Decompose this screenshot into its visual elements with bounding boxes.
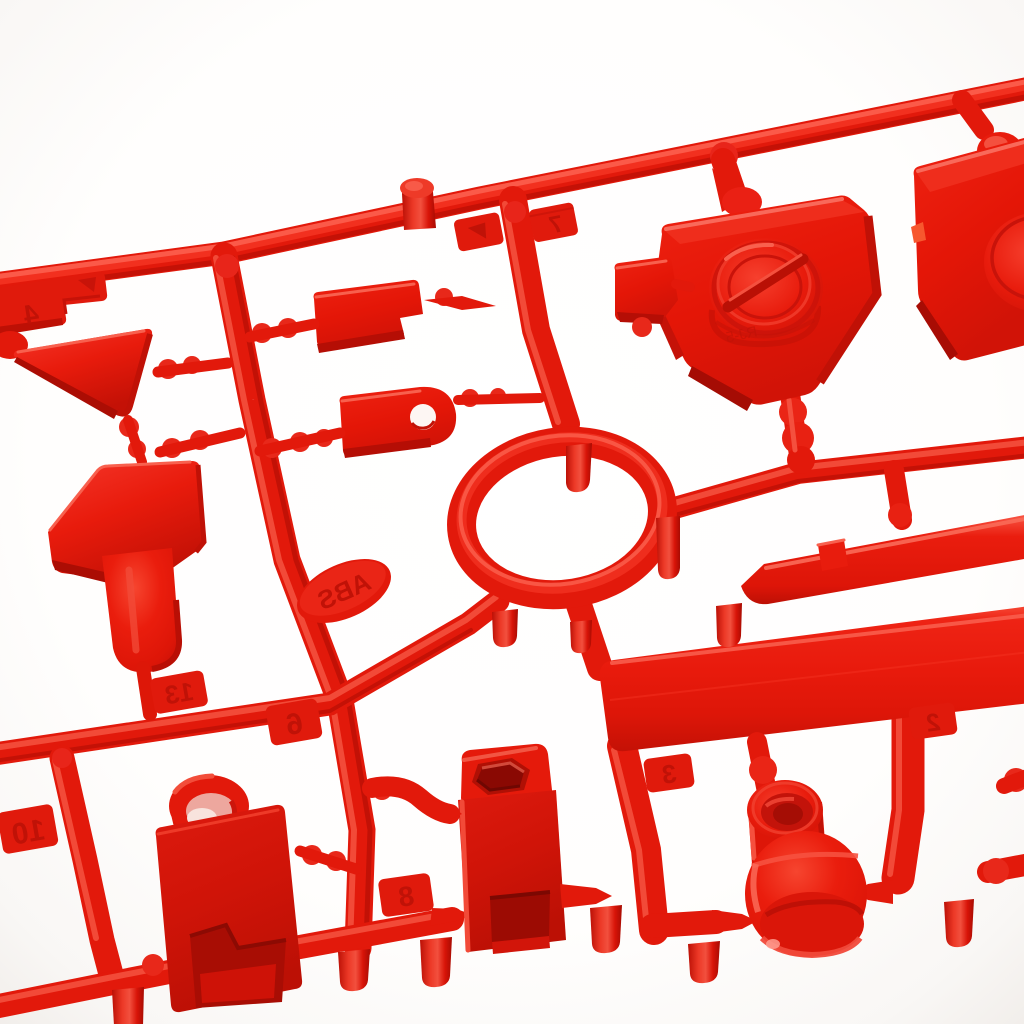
- svg-text:10: 10: [9, 813, 48, 851]
- svg-text:13: 13: [162, 676, 196, 711]
